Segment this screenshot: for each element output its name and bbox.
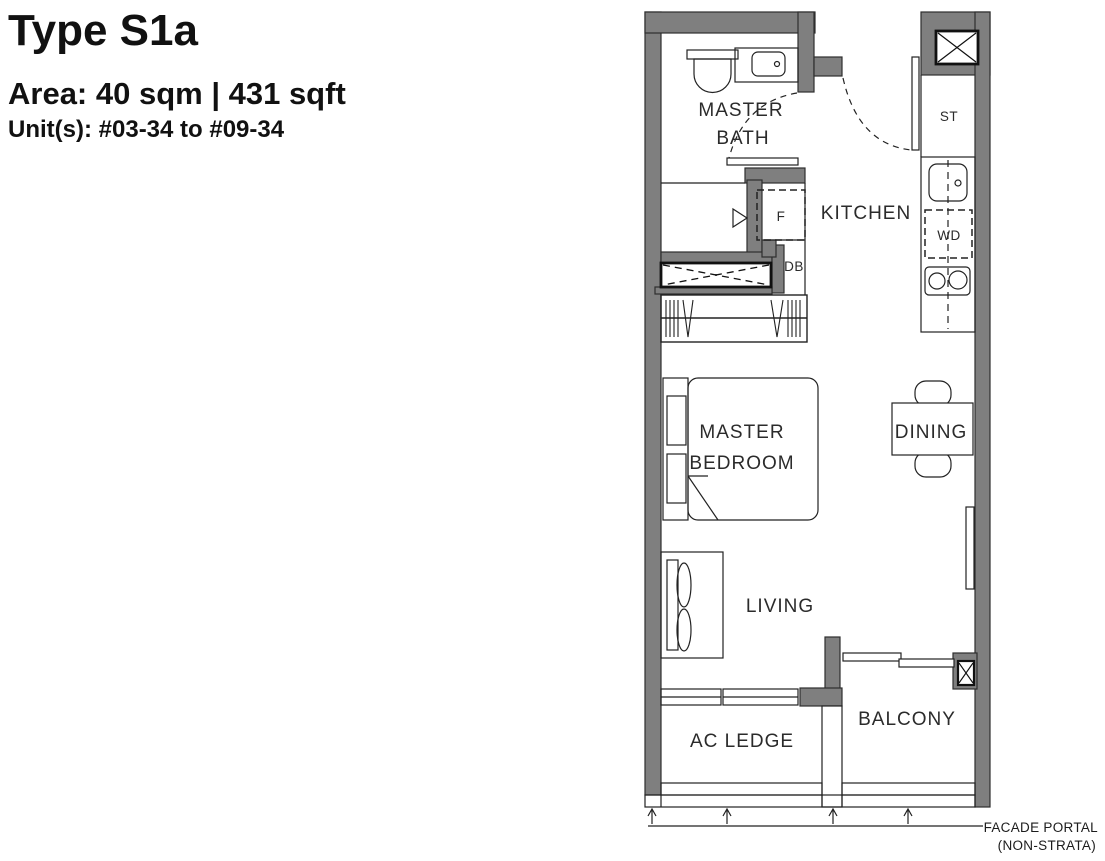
label-washer-dryer: WD [937,228,961,243]
label-ac-ledge: AC LEDGE [690,731,794,752]
living-furniture [661,552,723,658]
bath-faucet-icon [775,62,780,67]
dining-furniture [892,381,974,589]
sofa-cushion-bottom-icon [677,609,691,651]
duct-boxes [661,31,978,685]
label-master-bath-line2: BATH [716,128,769,149]
wall-below-fridge [762,240,776,257]
floorplan-page: Type S1a Area: 40 sqm | 431 sqft Unit(s)… [0,0,1105,861]
label-balcony: BALCONY [858,709,956,730]
label-dining: DINING [895,422,968,443]
label-store: ST [940,109,958,124]
kitchen-faucet-icon [955,180,961,186]
ac-ledge-parapet [661,783,822,795]
label-master-bedroom-line1: MASTER [699,422,784,443]
bath-door-leaf [727,158,798,165]
wall-bath-right [798,12,814,92]
sofa-outline [661,552,723,658]
label-master-bedroom-line2: BEDROOM [689,453,794,474]
dining-chair-bottom-icon [915,452,951,477]
wall-panel [966,507,974,589]
shower-head-icon [733,209,747,227]
entry-door [843,57,919,150]
wall-shower-right [747,180,762,257]
bed-fold-icon [688,476,718,520]
hob-burner-left-icon [929,273,945,289]
sofa-back [667,560,678,650]
area-text: Area: 40 sqm | 431 sqft [8,76,346,112]
facade-arrow-1-icon [648,809,656,824]
wall-top-left [645,12,815,33]
entry-door-swing-arc [843,78,911,150]
label-fridge: F [777,209,786,224]
entry-door-leaf [912,57,919,150]
balcony-ac-ledge [645,653,975,807]
balcony-parapet [842,783,975,795]
label-facade-portal-line1: FACADE PORTAL [984,820,1099,835]
label-master-bath-line1: MASTER [698,100,783,121]
wall-entry-stub [814,57,842,76]
ac-balcony-divider-wall [822,706,842,807]
dining-chair-top-icon [915,381,951,406]
bedroom-furniture [663,378,818,520]
wall-voidbox-top [661,252,772,263]
wall-living-stub [825,637,840,692]
wardrobe [661,295,807,342]
facade-portal-callout [648,809,983,826]
facade-arrow-4-icon [904,809,912,824]
balcony-slider-panel-left [843,653,901,661]
label-kitchen: KITCHEN [821,203,911,224]
facade-portal-strip [645,795,975,807]
label-db: DB [784,259,804,274]
facade-arrow-3-icon [829,809,837,824]
pillow-top-icon [667,396,686,445]
hob-burner-right-icon [949,271,967,289]
label-living: LIVING [746,596,814,617]
sofa-cushion-top-icon [677,563,691,607]
balcony-slider-panel-right [899,659,954,667]
wall-stub-arm [800,688,842,706]
bed-mattress [688,378,818,520]
bath-vanity-counter [735,48,798,82]
wall-left-outer [645,12,661,795]
facade-strip-ticks [661,795,842,807]
plan-header: Type S1a Area: 40 sqm | 431 sqft Unit(s)… [8,8,346,144]
units-text: Unit(s): #03-34 to #09-34 [8,116,346,144]
pillow-bottom-icon [667,454,686,503]
toilet-tank-icon [687,50,738,59]
page-title: Type S1a [8,8,346,54]
label-facade-portal-line2: (NON-STRATA) [998,838,1096,853]
toilet-bowl-icon [694,59,731,93]
facade-arrow-2-icon [723,809,731,824]
